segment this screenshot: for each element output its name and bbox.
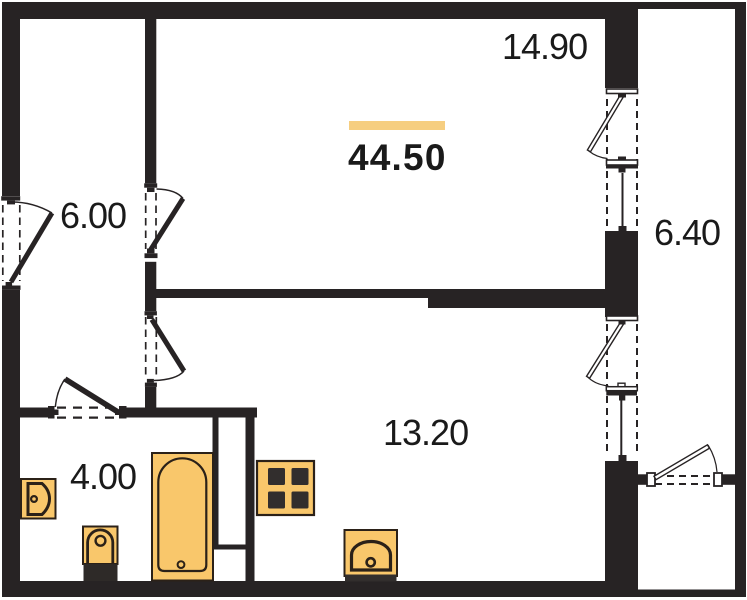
- svg-text:13.20: 13.20: [383, 412, 468, 453]
- svg-text:4.00: 4.00: [70, 456, 136, 497]
- svg-text:44.50: 44.50: [348, 137, 447, 178]
- svg-text:6.40: 6.40: [654, 212, 720, 253]
- svg-text:14.90: 14.90: [502, 26, 587, 67]
- svg-text:6.00: 6.00: [60, 195, 126, 236]
